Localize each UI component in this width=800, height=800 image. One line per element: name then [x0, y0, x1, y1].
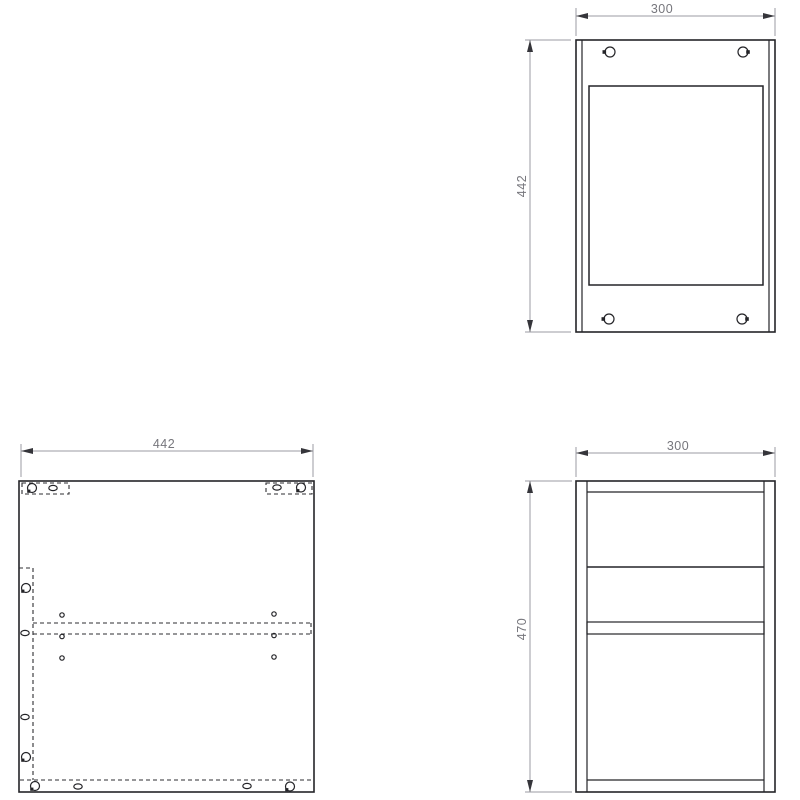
- dowel-hole-icon: [49, 485, 57, 490]
- cam-screw-icon: [602, 314, 615, 324]
- arrow-right-icon: [763, 450, 775, 456]
- pin-hole-icon: [60, 656, 64, 660]
- arrow-right-icon: [301, 448, 313, 454]
- arrow-right-icon: [763, 13, 775, 19]
- technical-drawing-canvas: 300 442: [0, 0, 800, 800]
- cam-screw-icon: [738, 47, 750, 57]
- front-view-height-dimension-label: 470: [515, 618, 529, 640]
- arrow-up-icon: [527, 481, 533, 493]
- arrow-left-icon: [21, 448, 33, 454]
- pin-hole-icon: [60, 634, 64, 638]
- cam-lock-icon: [27, 484, 36, 493]
- top-view-outline: [576, 40, 775, 332]
- top-view-width-dimension: 300: [576, 2, 775, 36]
- top-view-depth-dimension: 442: [515, 40, 571, 332]
- side-panel-outline: [19, 481, 314, 792]
- pin-hole-icon: [60, 613, 64, 617]
- dowel-hole-icon: [21, 630, 29, 635]
- top-view-width-dimension-label: 300: [651, 2, 673, 16]
- side-panel-width-dimension: 442: [21, 437, 313, 477]
- top-view: 300 442: [515, 2, 775, 332]
- cam-screw-icon: [603, 47, 616, 57]
- front-view-height-dimension: 470: [515, 481, 572, 792]
- arrow-left-icon: [576, 13, 588, 19]
- cam-lock-icon: [21, 584, 30, 593]
- cam-screw-icon: [737, 314, 749, 324]
- front-view-outline: [576, 481, 775, 792]
- cam-lock-icon: [285, 782, 294, 791]
- dowel-hole-icon: [74, 784, 82, 789]
- arrow-down-icon: [527, 780, 533, 792]
- pin-hole-icon: [272, 655, 276, 659]
- dowel-hole-icon: [273, 485, 281, 490]
- arrow-down-icon: [527, 320, 533, 332]
- cam-lock-icon: [21, 753, 30, 762]
- arrow-up-icon: [527, 40, 533, 52]
- side-panel-view: 442: [19, 437, 314, 792]
- arrow-left-icon: [576, 450, 588, 456]
- dowel-hole-icon: [21, 714, 29, 719]
- cam-lock-icon: [30, 782, 39, 791]
- top-view-depth-dimension-label: 442: [515, 175, 529, 197]
- cam-lock-icon: [296, 483, 305, 492]
- top-view-inner-panel: [589, 86, 763, 285]
- pin-hole-icon: [272, 612, 276, 616]
- front-view-width-dimension-label: 300: [667, 439, 689, 453]
- front-view-width-dimension: 300: [576, 439, 775, 477]
- dowel-hole-icon: [243, 783, 251, 788]
- side-panel-width-dimension-label: 442: [153, 437, 175, 451]
- front-view: 300 470: [515, 439, 775, 792]
- front-view-shelf: [587, 622, 764, 634]
